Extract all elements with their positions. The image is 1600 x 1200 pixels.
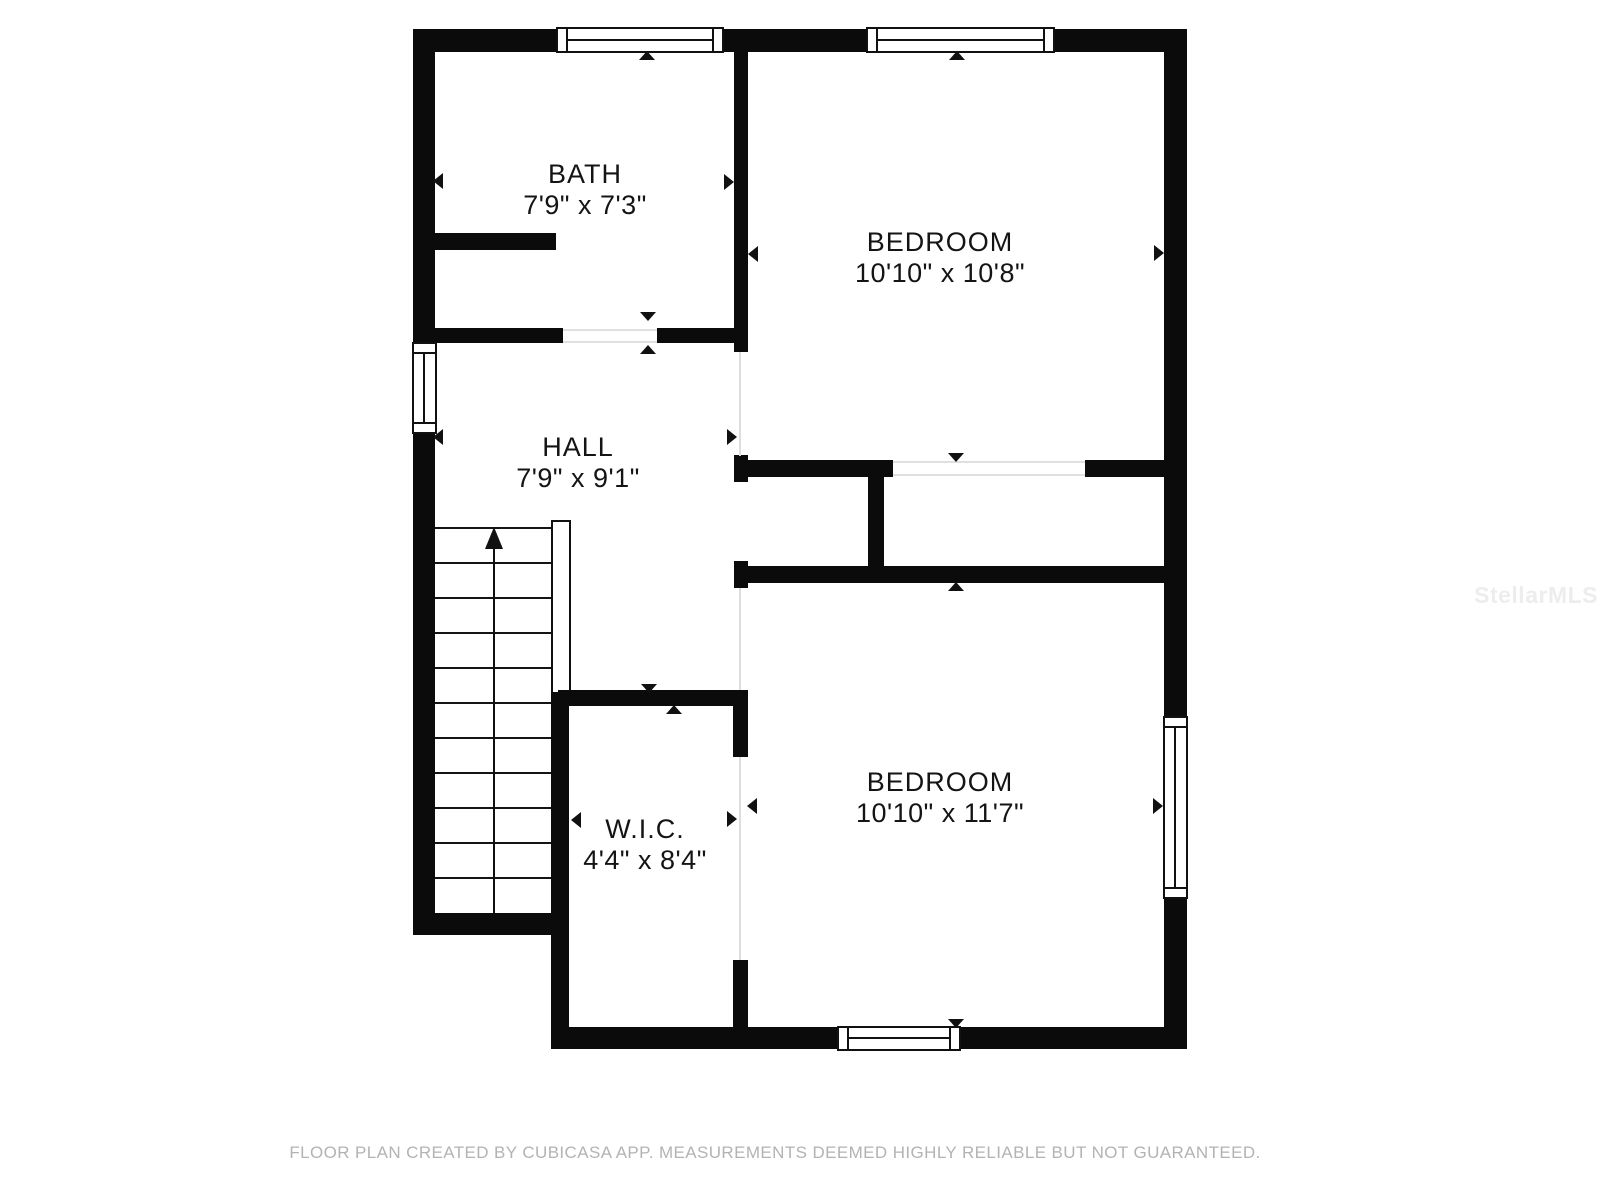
opening-marker-icon [747, 798, 757, 814]
wall-bath-stub [435, 233, 556, 250]
wall-left [413, 29, 435, 935]
room-name: HALL [516, 432, 640, 463]
room-dimensions: 7'9" x 9'1" [516, 463, 640, 494]
window-marker-icon [949, 51, 965, 60]
room-name: BEDROOM [856, 767, 1024, 798]
stellar-mls-watermark: StellarMLS [1474, 582, 1598, 609]
window-bedroom-right [1163, 716, 1188, 899]
floor-plan: BATH 7'9" x 7'3" BEDROOM 10'10" x 10'8" … [0, 0, 1600, 1200]
open-boundary-hall-bedroom-lower [739, 588, 741, 690]
stair-rail [551, 520, 571, 694]
wall-closet-bottom-cap [734, 561, 748, 588]
wall-closet-top-cap [734, 455, 748, 482]
opening-marker-icon [727, 429, 737, 445]
room-label-hall: HALL 7'9" x 9'1" [516, 432, 640, 494]
open-boundary-wic-bedroom [739, 757, 741, 960]
door-marker-icon [666, 705, 682, 714]
wall-wic-left [551, 692, 569, 1049]
wall-bath-bottom-left [435, 328, 563, 343]
window-marker-icon [433, 429, 443, 445]
room-dimensions: 7'9" x 7'3" [523, 190, 647, 221]
opening-marker-icon [724, 174, 734, 190]
wall-stair-bottom [413, 913, 568, 935]
window-bedroom-bottom [837, 1026, 961, 1051]
room-name: BEDROOM [855, 227, 1025, 258]
window-hall-left [412, 342, 437, 434]
wall-bath-bottom-right [657, 328, 734, 343]
wall-bath-bedroom [734, 52, 748, 352]
stair-walk-line [493, 549, 495, 913]
wall-top [413, 29, 1187, 52]
door-marker-icon [641, 684, 657, 693]
window-marker-icon [948, 1019, 964, 1028]
room-label-bedroom-bottom: BEDROOM 10'10" x 11'7" [856, 767, 1024, 829]
door-marker-icon [948, 582, 964, 591]
room-dimensions: 10'10" x 11'7" [856, 798, 1024, 829]
room-dimensions: 4'4" x 8'4" [583, 845, 707, 876]
wall-closet-divider [868, 460, 884, 583]
window-bedroom-top [866, 27, 1055, 53]
door-marker-icon [948, 453, 964, 462]
room-dimensions: 10'10" x 10'8" [855, 258, 1025, 289]
room-name: W.I.C. [583, 814, 707, 845]
stair-direction-arrow-icon [485, 527, 503, 549]
staircase [435, 527, 553, 913]
door-opening-closet [893, 461, 1085, 476]
wall-closet-bottom [734, 566, 1164, 583]
room-label-bedroom-top: BEDROOM 10'10" x 10'8" [855, 227, 1025, 289]
footer-disclaimer: FLOOR PLAN CREATED BY CUBICASA APP. MEAS… [289, 1143, 1260, 1163]
wall-wic-right-lower-stub [733, 960, 748, 1049]
window-marker-icon [1154, 245, 1164, 261]
window-bath-top [556, 27, 724, 53]
door-opening-bath [563, 329, 657, 343]
door-marker-icon [640, 345, 656, 354]
door-marker-icon [640, 312, 656, 321]
opening-marker-icon [748, 246, 758, 262]
room-label-bath: BATH 7'9" x 7'3" [523, 159, 647, 221]
window-marker-icon [433, 173, 443, 189]
window-marker-icon [639, 51, 655, 60]
open-boundary-hall-bedroom-upper [739, 352, 741, 456]
wall-closet-top-right [1085, 460, 1164, 477]
room-name: BATH [523, 159, 647, 190]
opening-marker-icon [727, 811, 737, 827]
room-label-wic: W.I.C. 4'4" x 8'4" [583, 814, 707, 876]
wall-wic-right-upper-stub [733, 690, 748, 757]
opening-marker-icon [571, 812, 581, 828]
window-marker-icon [1153, 798, 1163, 814]
